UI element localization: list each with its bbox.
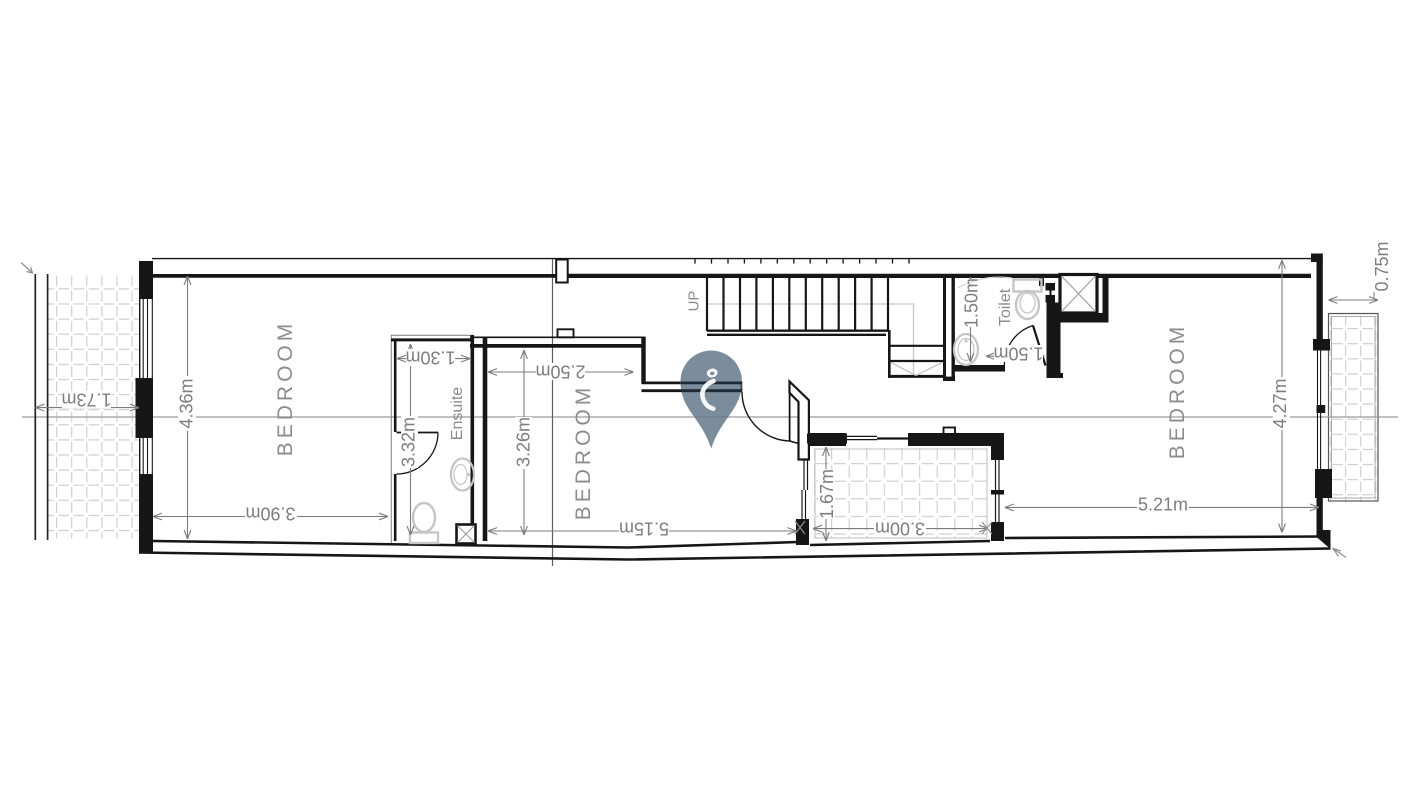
svg-text:3.32m: 3.32m (399, 417, 419, 467)
svg-text:2.50m: 2.50m (535, 362, 585, 382)
svg-text:1.30m: 1.30m (405, 348, 455, 368)
svg-text:BEDROOM: BEDROOM (572, 384, 595, 521)
svg-text:0.75m: 0.75m (1372, 241, 1392, 291)
svg-text:BEDROOM: BEDROOM (1166, 323, 1189, 460)
svg-text:1.67m: 1.67m (817, 469, 837, 519)
svg-text:Ensuite: Ensuite (449, 387, 466, 440)
svg-text:3.00m: 3.00m (875, 519, 925, 539)
svg-text:1.50m: 1.50m (962, 278, 982, 328)
svg-text:3.90m: 3.90m (245, 504, 295, 524)
svg-text:3.26m: 3.26m (514, 417, 534, 467)
svg-text:1.50m: 1.50m (993, 344, 1043, 364)
svg-text:5.15m: 5.15m (619, 519, 669, 539)
svg-text:4.27m: 4.27m (1270, 378, 1290, 428)
svg-text:Toilet: Toilet (997, 288, 1014, 326)
svg-text:BEDROOM: BEDROOM (274, 320, 297, 457)
svg-text:4.36m: 4.36m (177, 378, 197, 428)
svg-text:5.21m: 5.21m (1138, 495, 1188, 515)
svg-text:UP: UP (686, 291, 703, 312)
svg-text:1.73m: 1.73m (61, 390, 111, 410)
